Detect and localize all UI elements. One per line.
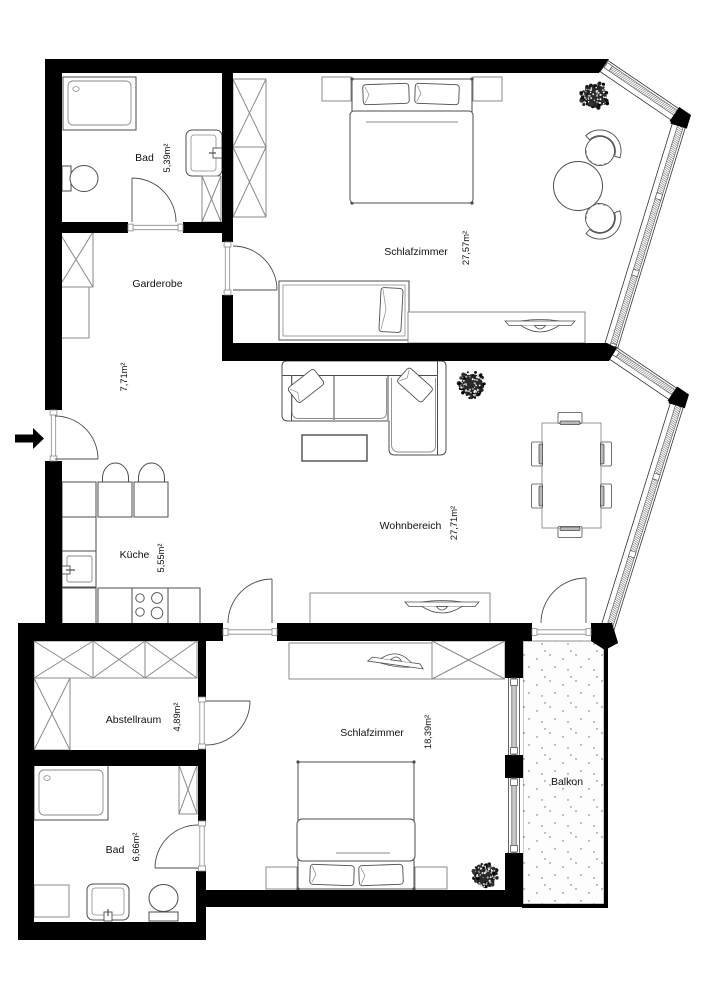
svg-text:Schlafzimmer: Schlafzimmer — [340, 727, 404, 739]
svg-text:Garderobe: Garderobe — [132, 278, 182, 290]
svg-text:Balkon: Balkon — [551, 776, 583, 788]
svg-text:Bad: Bad — [106, 844, 125, 856]
svg-text:6,66m²: 6,66m² — [131, 833, 141, 862]
svg-text:5,39m²: 5,39m² — [162, 144, 172, 173]
svg-text:Schlafzimmer: Schlafzimmer — [384, 246, 448, 258]
svg-text:Wohnbereich: Wohnbereich — [380, 520, 442, 532]
svg-text:18,39m²: 18,39m² — [423, 715, 433, 749]
svg-text:7,71m²: 7,71m² — [119, 363, 129, 392]
svg-text:27,57m²: 27,57m² — [461, 231, 471, 265]
svg-text:4,89m²: 4,89m² — [172, 703, 182, 732]
svg-text:5,55m²: 5,55m² — [156, 544, 166, 573]
svg-text:Bad: Bad — [135, 152, 154, 164]
svg-text:Abstellraum: Abstellraum — [106, 714, 162, 726]
svg-text:Küche: Küche — [120, 549, 150, 561]
svg-text:27,71m²: 27,71m² — [449, 506, 459, 540]
